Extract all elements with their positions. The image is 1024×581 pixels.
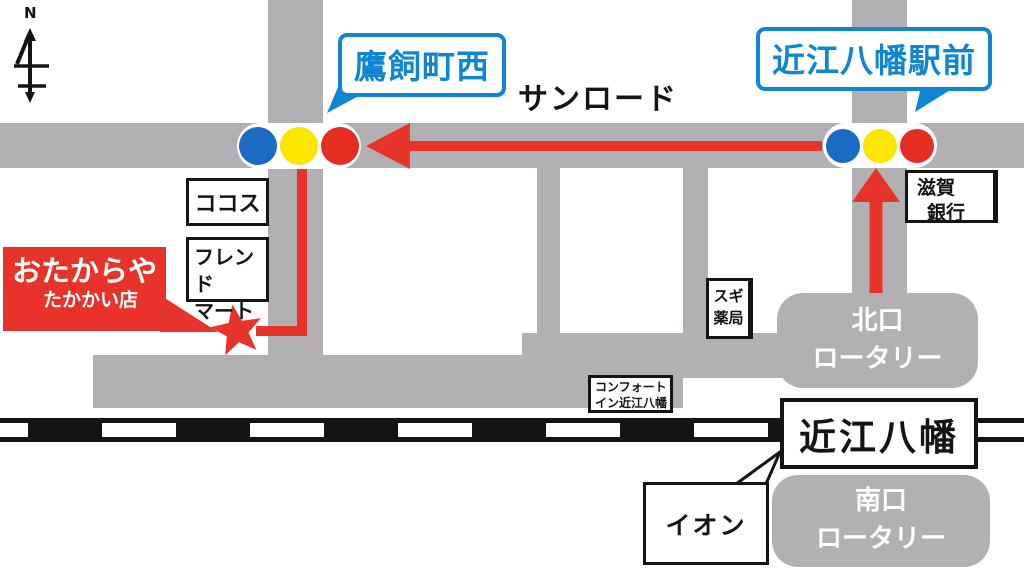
signal-red-light (321, 127, 359, 165)
signal-yellow-light (863, 129, 897, 163)
building-aeon: イオン (643, 482, 769, 565)
intersection-bubble-west: 鷹飼町西 (338, 33, 506, 97)
building-sugi-pharmacy: スギ 薬局 (706, 278, 753, 339)
intersection-bubble-east: 近江八幡駅前 (756, 27, 992, 91)
traffic-light-east (823, 123, 937, 168)
traffic-light-west (237, 123, 361, 169)
building-comfort-inn: コンフォート イン近江八幡 (588, 375, 673, 413)
aeon-callout-tail-icon (736, 452, 780, 484)
signal-blue-light (239, 127, 277, 165)
signal-red-light (900, 129, 934, 163)
building-shiga-bank-line2: 銀行 (927, 201, 993, 226)
building-shiga-bank-line1: 滋賀 (917, 176, 993, 201)
station-box: 近江八幡 (780, 398, 978, 469)
store-sign: おたからや たかかい店 (3, 247, 166, 331)
building-comfort-line1: コンフォート (595, 380, 670, 396)
building-cocos-label: ココス (194, 186, 260, 218)
rotary-north-exit: 北口 ロータリー (777, 293, 978, 388)
road-vertical-west (268, 0, 323, 408)
building-comfort-line2: イン近江八幡 (595, 396, 670, 412)
road-vertical-middle-b (683, 168, 708, 358)
building-sugi-line2: 薬局 (709, 308, 748, 330)
rotary-south-label-line2: ロータリー (772, 521, 990, 559)
building-shiga-bank: 滋賀 銀行 (905, 170, 998, 223)
north-arrow-icon (14, 28, 49, 103)
building-sugi-line1: スギ (709, 286, 748, 308)
map-canvas: 北口 ロータリー 南口 ロータリー N サンロード (0, 0, 1024, 581)
station-name-label: 近江八幡 (799, 407, 959, 461)
signal-yellow-light (280, 127, 318, 165)
rotary-north-label-line1: 北口 (777, 303, 978, 341)
building-friend-mart-line2: マート (194, 298, 266, 325)
signal-blue-light (826, 129, 860, 163)
rotary-south-label-line1: 南口 (772, 483, 990, 521)
store-sign-name: おたからや (3, 256, 166, 288)
building-cocos: ココス (186, 178, 269, 226)
rotary-north-label-line2: ロータリー (777, 341, 978, 379)
rotary-south-exit: 南口 ロータリー (772, 475, 990, 567)
compass-north-label: N (24, 4, 37, 22)
building-aeon-label: イオン (665, 506, 746, 542)
road-vertical-middle-a (537, 168, 560, 358)
building-friend-mart: フレンド マート (186, 237, 269, 302)
building-friend-mart-line1: フレンド (194, 244, 266, 298)
store-sign-branch: たかかい店 (15, 288, 166, 313)
road-name-label: サンロード (518, 74, 678, 118)
